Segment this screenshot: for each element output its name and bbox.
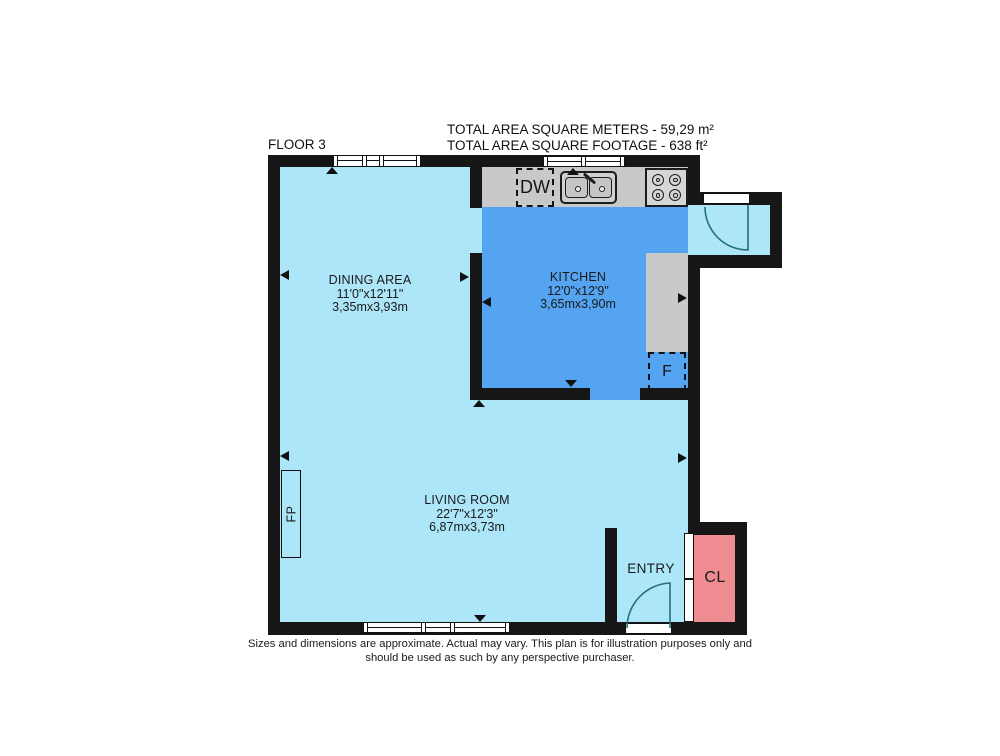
kitchen-room-name: KITCHEN [498, 271, 658, 285]
wall-alcove-bottom [700, 255, 782, 268]
stove-burner-icon [652, 189, 664, 201]
dishwasher: DW [516, 168, 554, 207]
alcove-door-threshold [703, 193, 750, 204]
wall-left [268, 155, 280, 635]
dining-room-dims-ft: 11'0"x12'11" [290, 288, 450, 302]
dining-room-label: DINING AREA 11'0"x12'11" 3,35mx3,93m [290, 274, 450, 315]
wall-kitchen-divider [470, 253, 482, 388]
total-area-block: TOTAL AREA SQUARE METERS - 59,29 m² TOTA… [447, 122, 714, 153]
wall-kitchen-bottom-left [470, 388, 590, 400]
dimension-marker-icon [565, 380, 577, 387]
window-dining [333, 155, 421, 167]
fridge-label: F [662, 363, 672, 381]
entry-door-threshold [625, 623, 672, 634]
floorplan-canvas: FLOOR 3 TOTAL AREA SQUARE METERS - 59,29… [0, 0, 1000, 756]
kitchen-room-label: KITCHEN 12'0"x12'9" 3,65mx3,90m [498, 271, 658, 312]
living-room-label: LIVING ROOM 22'7"x12'3" 6,87mx3,73m [387, 494, 547, 535]
alcove-floor [688, 205, 770, 255]
dimension-marker-icon [460, 272, 469, 282]
fireplace-label: FP [284, 506, 298, 523]
dimension-marker-icon [473, 400, 485, 407]
stove-icon [645, 168, 688, 207]
wall-closet-right [735, 522, 747, 635]
stove-burner-icon [669, 174, 681, 186]
dimension-marker-icon [280, 270, 289, 280]
dining-room-dims-m: 3,35mx3,93m [290, 301, 450, 315]
dimension-marker-icon [678, 453, 687, 463]
fridge: F [648, 352, 686, 391]
wall-right-upper-stub [688, 167, 700, 205]
kitchen-sink-icon [560, 171, 617, 204]
dimension-marker-icon [678, 293, 687, 303]
disclaimer-text: Sizes and dimensions are approximate. Ac… [240, 638, 760, 665]
stove-burner-icon [669, 189, 681, 201]
wall-kitchen-divider-stub [470, 167, 482, 208]
dishwasher-label: DW [520, 177, 550, 198]
closet-label: CL [695, 569, 735, 587]
dimension-marker-icon [474, 615, 486, 622]
window-living [363, 622, 510, 633]
fireplace: FP [281, 470, 301, 558]
kitchen-room-dims-ft: 12'0"x12'9" [498, 285, 658, 299]
disclaimer-line1: Sizes and dimensions are approximate. Ac… [240, 638, 760, 652]
living-room-name: LIVING ROOM [387, 494, 547, 508]
living-room-dims-m: 6,87mx3,73m [387, 521, 547, 535]
wall-kitchen-bottom-right [640, 388, 700, 400]
floor-title: FLOOR 3 [268, 137, 326, 152]
window-kitchen [543, 156, 625, 167]
disclaimer-line2: should be used as such by any perspectiv… [240, 652, 760, 666]
kitchen-opening-floor [590, 388, 640, 400]
total-area-sqm: TOTAL AREA SQUARE METERS - 59,29 m² [447, 122, 714, 138]
stove-burner-icon [652, 174, 664, 186]
dimension-marker-icon [326, 167, 338, 174]
dining-room-name: DINING AREA [290, 274, 450, 288]
sink-basin-left [565, 177, 588, 198]
closet-sliding-door [684, 533, 694, 622]
dimension-marker-icon [567, 168, 579, 175]
entry-label: ENTRY [615, 561, 687, 576]
living-room-dims-ft: 22'7"x12'3" [387, 508, 547, 522]
kitchen-room-dims-m: 3,65mx3,90m [498, 298, 658, 312]
total-area-sqft: TOTAL AREA SQUARE FOOTAGE - 638 ft² [447, 138, 714, 154]
dimension-marker-icon [482, 297, 491, 307]
dimension-marker-icon [280, 451, 289, 461]
